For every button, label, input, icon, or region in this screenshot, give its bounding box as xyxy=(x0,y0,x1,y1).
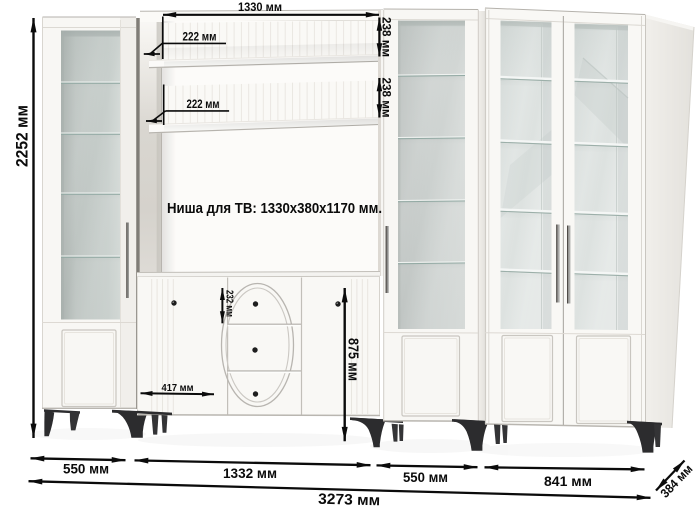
svg-text:Ниша для ТВ: 1330х380х1170 мм.: Ниша для ТВ: 1330х380х1170 мм. xyxy=(167,201,382,217)
svg-text:550 мм: 550 мм xyxy=(63,462,109,477)
svg-text:238 мм: 238 мм xyxy=(379,17,391,57)
svg-text:1332 мм: 1332 мм xyxy=(223,466,277,481)
svg-text:3273 мм: 3273 мм xyxy=(318,491,380,510)
svg-text:550 мм: 550 мм xyxy=(403,470,448,485)
svg-text:222 мм: 222 мм xyxy=(187,99,220,111)
svg-text:875 мм: 875 мм xyxy=(345,338,362,381)
svg-text:841 мм: 841 мм xyxy=(544,474,592,489)
svg-text:417 мм: 417 мм xyxy=(162,382,194,394)
svg-text:2252 мм: 2252 мм xyxy=(14,105,32,167)
svg-text:232 мм: 232 мм xyxy=(224,290,236,317)
svg-text:238 мм: 238 мм xyxy=(379,78,391,118)
svg-text:1330 мм: 1330 мм xyxy=(238,2,282,14)
svg-text:222 мм: 222 мм xyxy=(183,32,217,44)
